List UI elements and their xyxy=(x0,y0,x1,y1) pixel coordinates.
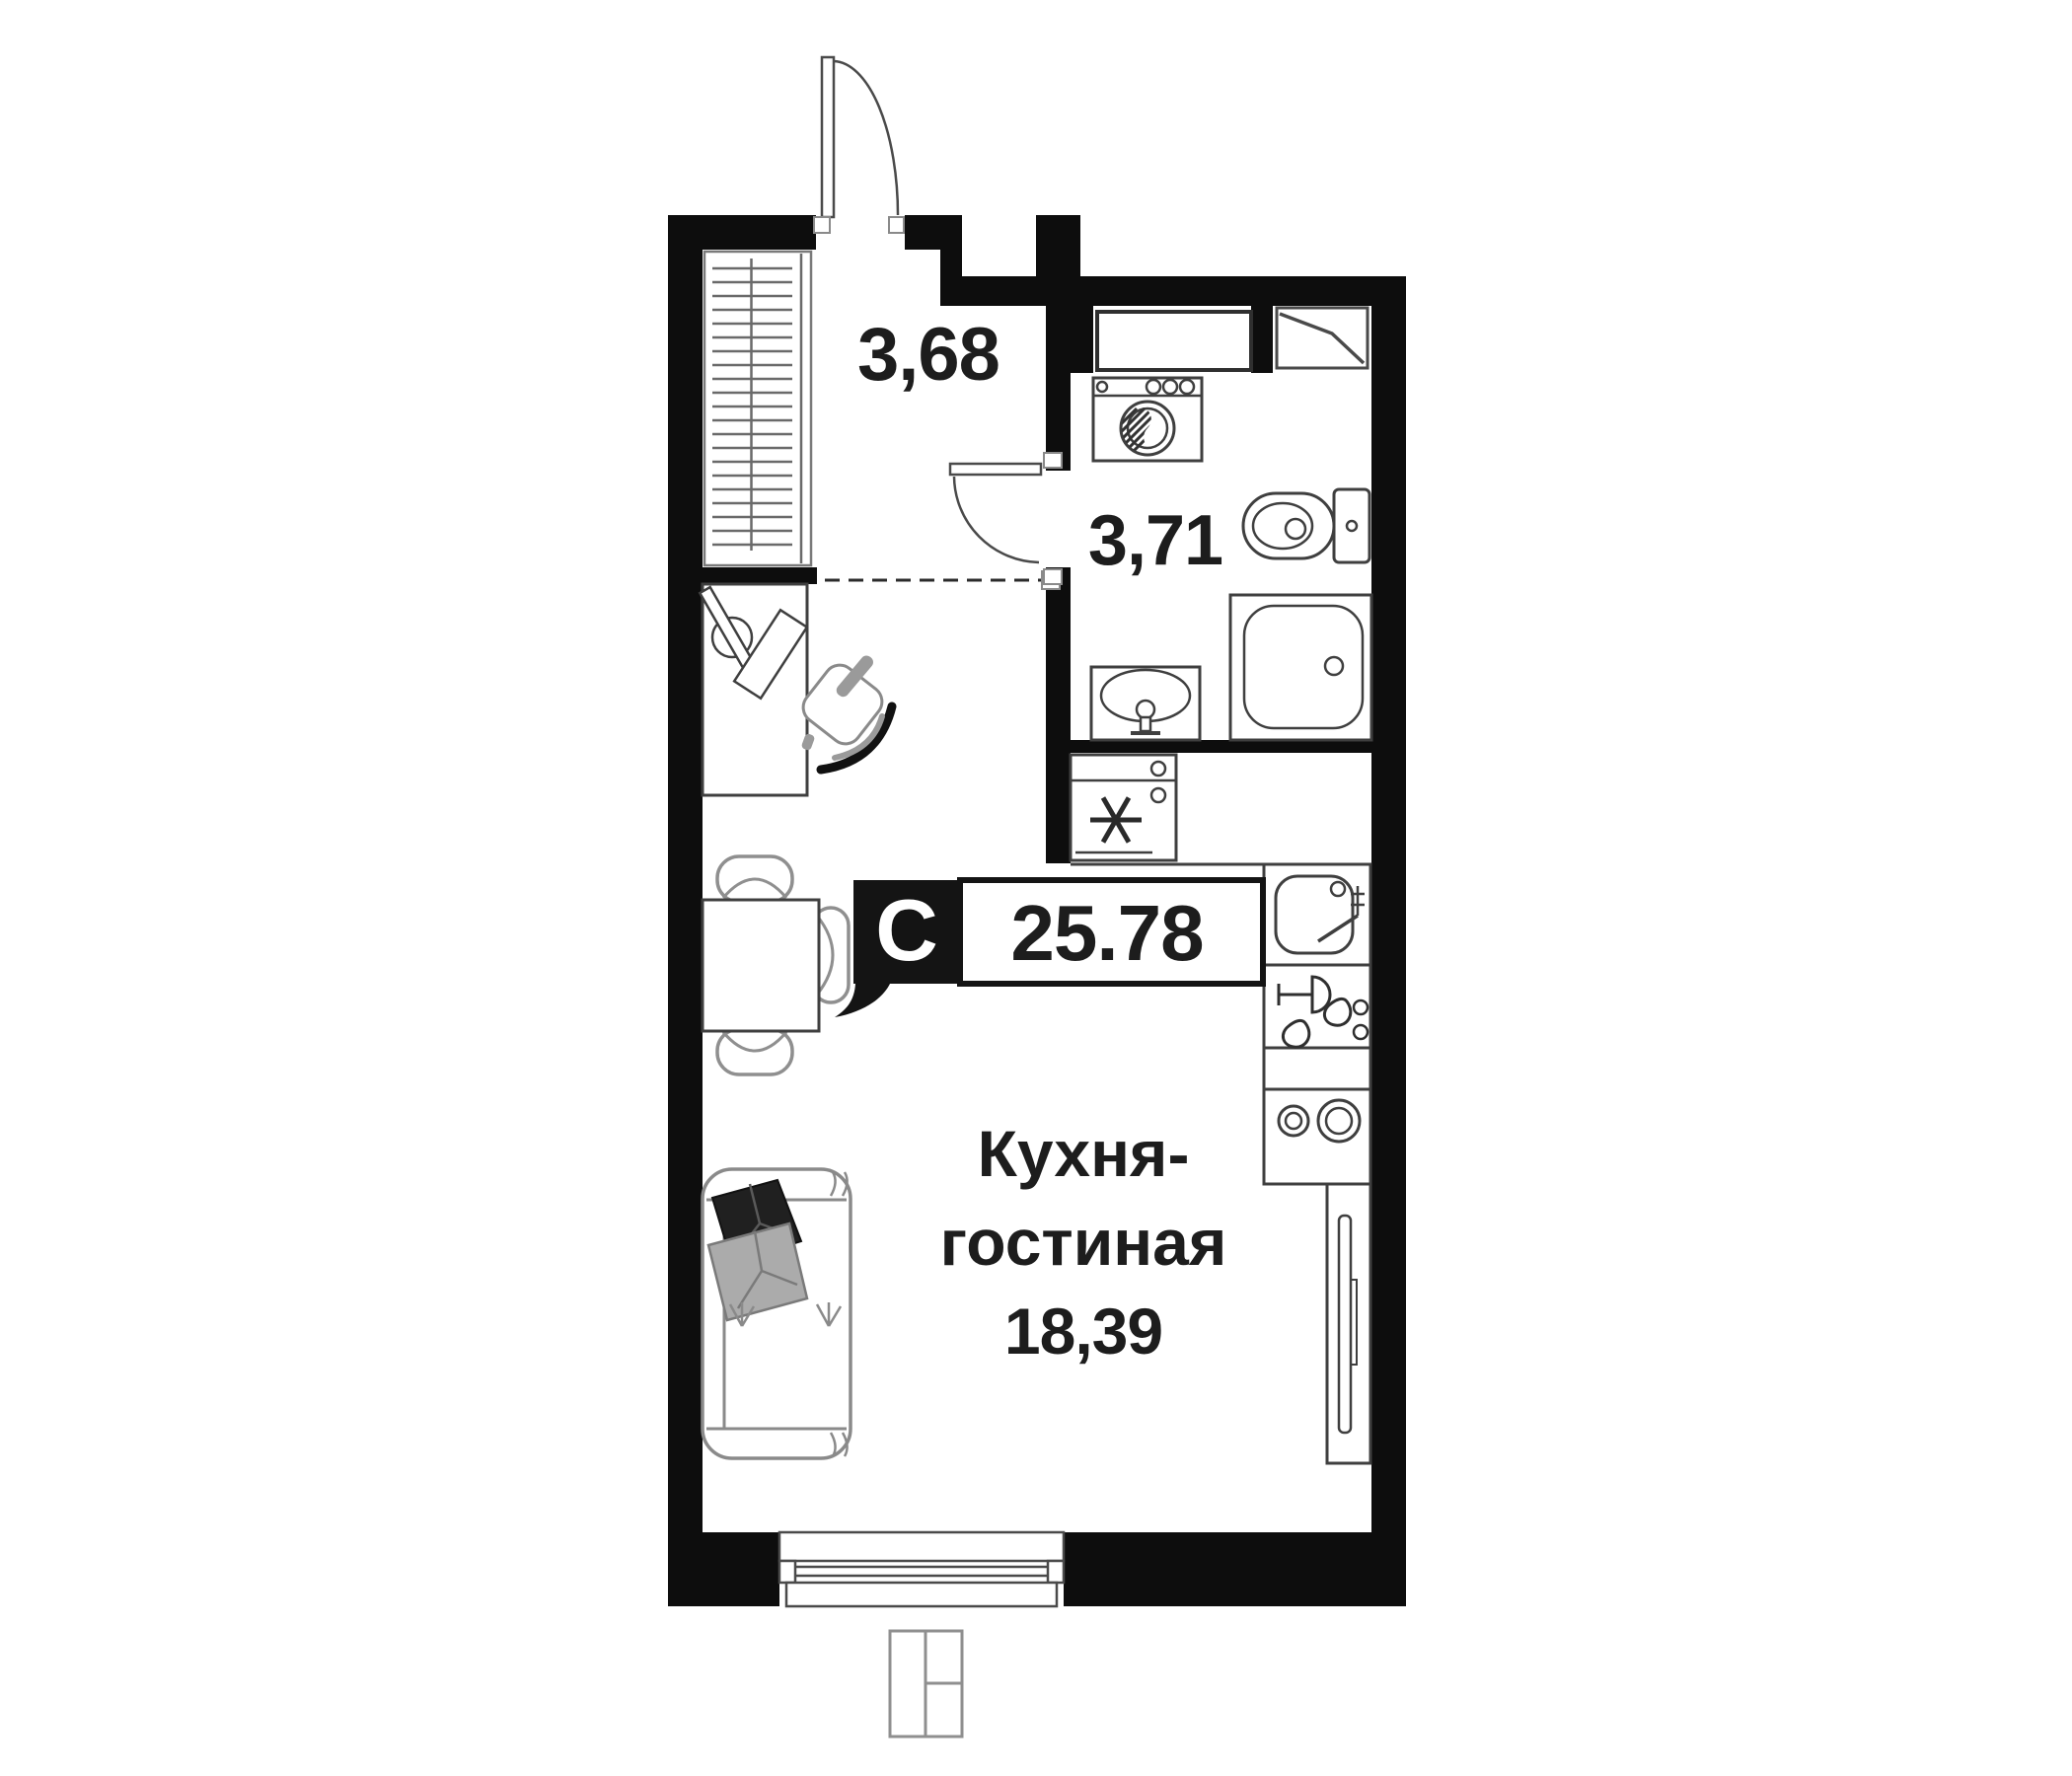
wall-bathroom-left-lower xyxy=(1046,567,1071,863)
entrance-door-icon xyxy=(814,57,904,233)
hallway-area-label: 3,68 xyxy=(857,313,999,397)
wall-left xyxy=(668,215,703,1606)
dining-chair-icon xyxy=(717,856,792,902)
fridge-icon xyxy=(1071,755,1176,860)
bathroom-area-label: 3,71 xyxy=(1088,501,1222,580)
bathroom-door-icon xyxy=(950,453,1062,584)
window-icon xyxy=(779,1532,1064,1606)
kitchen-living-name-line2: гостиная xyxy=(940,1206,1227,1279)
wall-niche-pillar-1 xyxy=(1069,306,1093,373)
sofa-icon xyxy=(703,1169,851,1458)
building-core-icon xyxy=(890,1631,962,1737)
area-badge: С 25.78 xyxy=(835,880,1263,1017)
kitchen-living-area-label: 18,39 xyxy=(1004,1295,1162,1368)
desk-icon xyxy=(700,584,807,795)
shower-tray-icon xyxy=(1230,595,1371,740)
wall-bottom-right xyxy=(1064,1532,1406,1606)
wall-stub-wardrobe xyxy=(703,567,817,584)
washing-machine-icon xyxy=(1089,378,1202,461)
wardrobe-icon xyxy=(704,252,811,565)
wall-right xyxy=(1371,276,1406,1606)
washbasin-icon xyxy=(1091,667,1200,740)
badge-type-letter: С xyxy=(875,881,938,979)
wall-bottom-left xyxy=(668,1532,779,1606)
zone-divider xyxy=(825,571,1060,589)
badge-total-area: 25.78 xyxy=(1010,889,1203,977)
kitchen-living-name-line1: Кухня- xyxy=(978,1117,1190,1190)
toilet-icon xyxy=(1243,489,1369,562)
shelf-niche-icon xyxy=(1097,312,1251,370)
floor-plan-canvas: С 25.78 3,68 3,71 Кухня- гостиная 18,39 xyxy=(0,0,2072,1776)
wall-bathroom-bottom xyxy=(1071,740,1371,753)
dining-chair-icon xyxy=(717,1029,792,1074)
floor-plan: С 25.78 3,68 3,71 Кухня- гостиная 18,39 xyxy=(0,0,2072,1776)
radiator-icon xyxy=(1327,1184,1370,1463)
wall-top-entry-right xyxy=(905,215,962,250)
wall-top-left xyxy=(668,215,816,250)
vent-shaft-icon xyxy=(1277,308,1368,368)
wall-niche-pillar-2 xyxy=(1251,306,1273,373)
wall-bathroom-left-upper xyxy=(1046,306,1071,471)
office-chair-icon xyxy=(797,653,892,770)
wall-bathroom-top xyxy=(940,276,1406,306)
dining-table-icon xyxy=(703,900,819,1031)
